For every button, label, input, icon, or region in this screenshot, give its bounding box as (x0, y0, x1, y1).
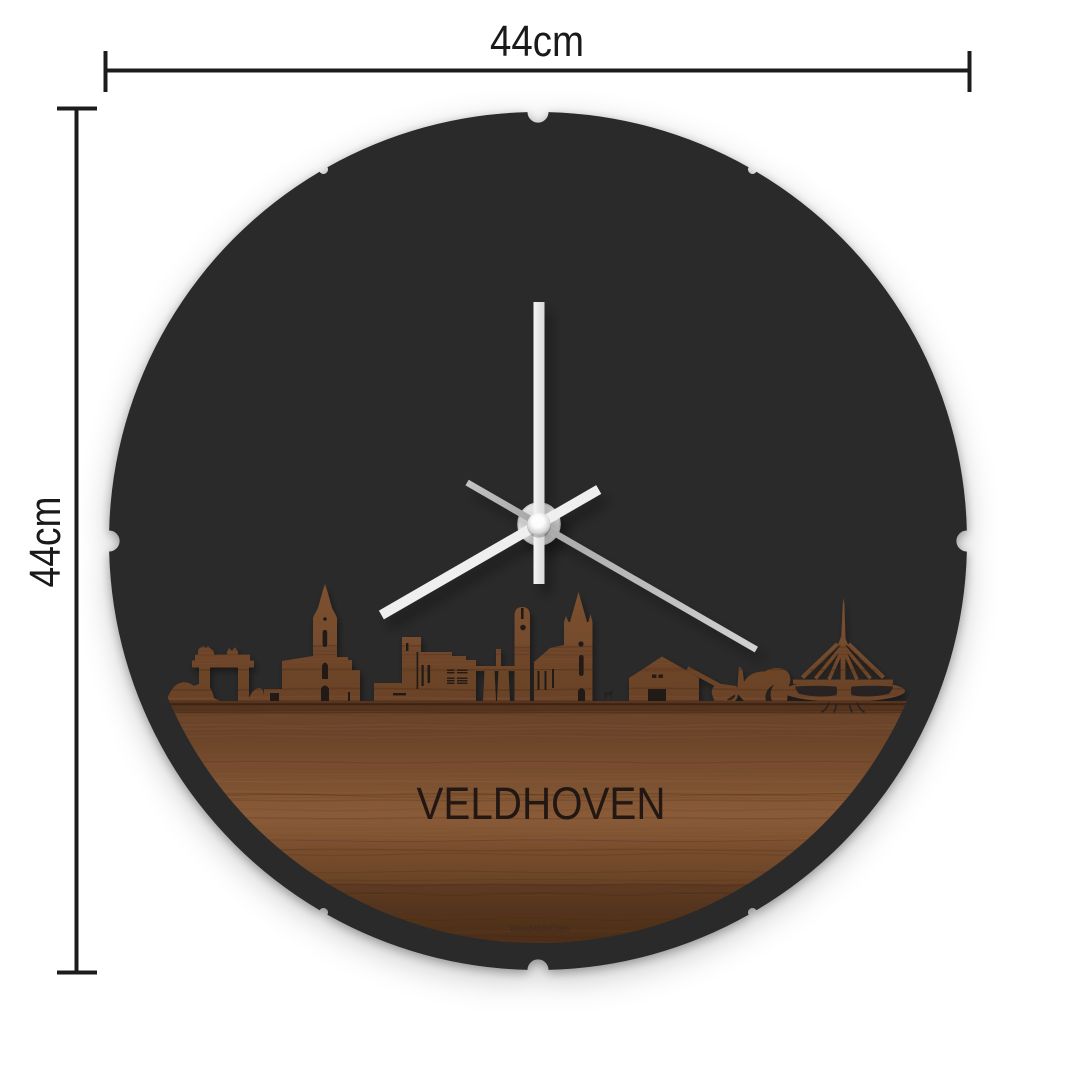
svg-text:44cm: 44cm (490, 17, 584, 66)
svg-text:WoodWideCities: WoodWideCities (510, 924, 570, 935)
svg-text:44cm: 44cm (21, 497, 70, 588)
svg-text:VELDHOVEN: VELDHOVEN (417, 778, 666, 829)
